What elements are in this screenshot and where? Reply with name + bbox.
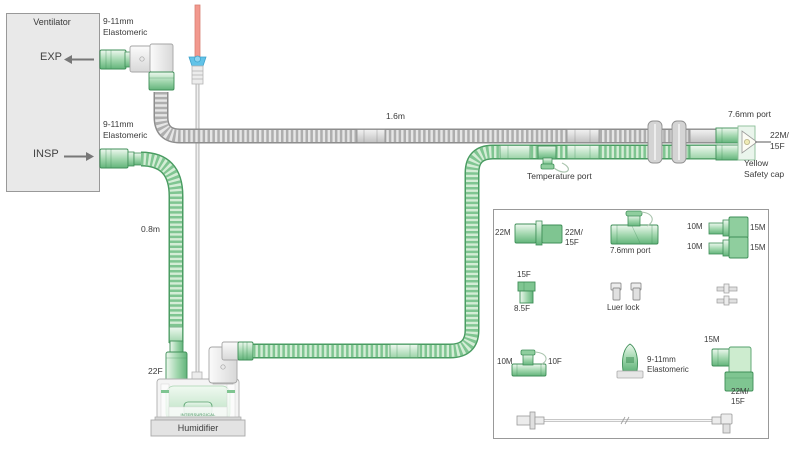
exp-label: EXP (40, 52, 62, 63)
legend-22m15f-label-1: 22M/ (565, 228, 583, 239)
legend-adapter1-right-label: 15M (750, 223, 766, 234)
exp-adapter-label-1: 9-11mm (103, 16, 134, 27)
legend-10m-label: 10M (497, 357, 513, 368)
breathing-circuit-diagram: Ventilator EXP INSP 9-11mm Elastomeric 9… (0, 0, 800, 450)
legend-elbow-connector (712, 347, 753, 391)
legend-elbow-bottom-label-2: 15F (731, 397, 745, 408)
legend-port-tee (611, 211, 658, 244)
insp-label: INSP (33, 149, 59, 160)
humidifier-brand: INTERSURGICAL (169, 410, 227, 421)
legend-adapter2-left-label: 10M (687, 242, 703, 253)
wye-patient-end (716, 126, 771, 160)
legend-extension-line (517, 412, 732, 433)
patient-end-size-2: 15F (770, 141, 785, 152)
ventilator-title: Ventilator (6, 17, 98, 28)
temperature-port-label: Temperature port (527, 171, 592, 182)
expiratory-limb-tube (161, 92, 718, 143)
circuit-graphics (0, 0, 800, 450)
legend-luer-locks (611, 283, 641, 300)
safety-cap-label-1: Yellow (744, 158, 768, 169)
insp-limb-length-label: 0.8m (141, 224, 160, 235)
inspiratory-limb-tube (141, 159, 183, 343)
legend-85f-label: 8.5F (514, 304, 530, 315)
legend-elastomeric-adapter (617, 344, 643, 378)
insp-adapter-label-1: 9-11mm (103, 119, 134, 130)
legend-15f-label: 15F (517, 270, 531, 281)
bag-spike-icon (195, 5, 200, 58)
port-label: 7.6mm port (728, 109, 771, 120)
legend-adapter2-right-label: 15M (750, 243, 766, 254)
legend-22m-label: 22M (495, 228, 511, 239)
insp-adapter-label-2: Elastomeric (103, 130, 147, 141)
insp-elastomeric-connector (100, 149, 143, 168)
humidifier-outlet-elbow (209, 342, 253, 384)
flow-arrows (64, 55, 94, 161)
legend-22m15f-label-2: 15F (565, 238, 579, 249)
exp-limb-length-label: 1.6m (386, 111, 405, 122)
safety-cap-label-2: Safety cap (744, 169, 784, 180)
humidifier-label: Humidifier (151, 423, 245, 434)
legend-port-tee-label: 7.6mm port (610, 246, 650, 257)
temperature-port-cap-icon (541, 164, 554, 169)
legend-elbow-bottom-label-1: 22M/ (731, 387, 749, 398)
exp-adapter-label-2: Elastomeric (103, 27, 147, 38)
legend-catheter-connector (518, 282, 535, 303)
exp-elastomeric-connector (100, 44, 174, 90)
legend-adapter1-left-label: 10M (687, 222, 703, 233)
humidifier-inlet-label: 22F (148, 366, 163, 377)
water-feed-line (189, 5, 206, 400)
legend-tee-10m-10f (512, 350, 546, 376)
legend-elbow-top-label: 15M (704, 335, 720, 346)
legend-luer-adapters-gray (717, 284, 737, 305)
legend-straight-connector (515, 221, 562, 245)
patient-end-size-1: 22M/ (770, 130, 789, 141)
legend-luer-lock-label: Luer lock (607, 303, 639, 314)
legend-adapter-1 (709, 217, 748, 238)
legend-adapter-2 (709, 237, 748, 258)
legend-elastomeric-label-1: 9-11mm (647, 355, 676, 366)
legend-10f-label: 10F (548, 357, 562, 368)
legend-elastomeric-label-2: Elastomeric (647, 365, 689, 376)
humidifier-inlet-connector-22f (166, 341, 187, 381)
